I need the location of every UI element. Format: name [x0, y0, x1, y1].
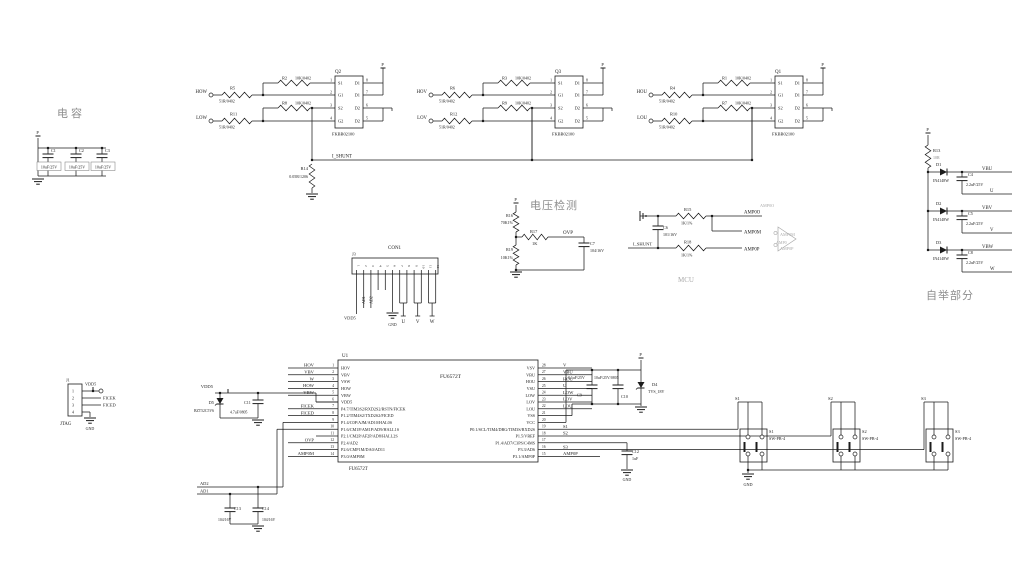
pin-name: P2.4/AD2 — [341, 440, 358, 445]
switch-contact — [760, 452, 764, 456]
switch-contact — [853, 452, 857, 456]
tvs-diode[interactable] — [636, 382, 645, 390]
net-label: OVP — [305, 438, 315, 443]
pin-number: 10 — [422, 265, 426, 269]
resistor[interactable] — [662, 118, 692, 124]
pin-number: 5 — [806, 116, 808, 120]
net-label: LOV — [417, 116, 427, 121]
diode-part: BZT52C5V6 — [194, 409, 214, 413]
pin-name: P2.6/CMP1M/DA0/AD11 — [341, 447, 385, 452]
pin-number: 4 — [770, 116, 772, 120]
cap-ref: C12 — [632, 449, 639, 454]
net-label: VBW — [982, 245, 994, 250]
net-label: S1 — [563, 424, 569, 429]
pin-number: 2 — [550, 90, 552, 94]
phase-label: U — [401, 320, 405, 325]
res-value: 1K/1% — [681, 221, 693, 226]
net-label: I_SHUNT — [633, 242, 652, 247]
pin-name: S2 — [778, 106, 783, 111]
port-pin[interactable] — [649, 119, 653, 123]
ad-filter: AD2AD1C13104/16VC14104/16V — [197, 481, 283, 531]
component-part: SW-PB-4 — [769, 436, 786, 441]
diode-ref: D1 — [936, 162, 941, 167]
vdd5-reg: VDD5D5BZT52C5V6C114.7uF/0805 — [194, 384, 338, 425]
phase-label: W — [990, 267, 995, 272]
pin-number: 14 — [330, 452, 334, 456]
pin-name: G2 — [778, 119, 783, 124]
pin-number: 24 — [542, 391, 546, 395]
pin-number: 3 — [332, 377, 334, 381]
res-ref: R9 — [502, 101, 508, 106]
res-value: 51R/0402 — [439, 99, 455, 104]
res-ref: R11 — [230, 112, 237, 117]
schematic-canvas: PC110uF/25VC210uF/25VC310uF/25VHOWR551R/… — [0, 0, 1034, 580]
cap-value: 10uF/25V — [95, 164, 111, 169]
port-pin[interactable] — [429, 119, 433, 123]
schematic-sheet: PC110uF/25VC210uF/25VC310uF/25VHOWR551R/… — [0, 0, 1034, 580]
pin-name: VBW — [341, 393, 351, 398]
port-pin[interactable] — [429, 93, 433, 97]
capacitor[interactable] — [957, 216, 968, 220]
pin-name: G2 — [558, 119, 563, 124]
pin-name: D1 — [575, 81, 580, 86]
ghost-label: AMP0M — [780, 232, 795, 237]
pin-number: 8 — [407, 265, 411, 267]
diode-part: IN4148W — [933, 178, 949, 183]
gnd-symbol — [252, 526, 264, 531]
pin-number: 11 — [429, 265, 433, 269]
power-net-label: P — [821, 62, 824, 67]
capacitor-bank: PC110uF/25VC210uF/25VC310uF/25V — [32, 130, 115, 184]
pin-number: 25 — [542, 384, 546, 388]
cap-ref: C5 — [968, 211, 973, 216]
cap-value: 2.2uF/25V — [966, 221, 983, 226]
pin-name: D1 — [355, 93, 360, 98]
res-value: 10K/0402 — [735, 76, 751, 81]
pin-number: 1 — [72, 389, 74, 394]
pin-name: P1.4/AD7/C3PS/C4MS — [495, 440, 535, 445]
component-ref: Q3 — [555, 70, 562, 75]
gnd-symbol — [510, 272, 522, 277]
switch-contact — [760, 435, 764, 439]
pin-number: 11 — [331, 431, 335, 435]
cap-value: 0.1uF/25V — [568, 376, 585, 380]
power-net-label: P — [381, 62, 384, 67]
cap-value: 10uF/25V — [41, 164, 57, 169]
resistor[interactable] — [718, 105, 750, 111]
pin-number: 3 — [371, 265, 375, 267]
cap-ref: C8 — [968, 250, 973, 255]
gnd-symbol — [306, 194, 318, 199]
phase-label: V — [990, 228, 994, 233]
power-flag-p: P — [601, 62, 606, 68]
cap-ref: C9 — [577, 393, 582, 398]
component-part: FKBB02100 — [332, 132, 355, 137]
resistor[interactable] — [309, 164, 315, 188]
resistor[interactable] — [498, 105, 530, 111]
component-ref: S1 — [769, 429, 774, 434]
resistor[interactable] — [522, 234, 548, 240]
net-label: S2 — [828, 396, 834, 401]
pin-number: 5 — [586, 116, 588, 120]
cap-value: 104/16V — [262, 518, 276, 522]
resistor[interactable] — [222, 92, 252, 98]
vcc-decoupling: P0.1uF/25VC910uF/25V/0805C10D4TVS_18VC12… — [566, 352, 665, 482]
switches: S1S1SW-PB-4S2S2SW-PB-4S3S3SW-PB-4GND — [735, 396, 972, 487]
res-ref: R17 — [530, 229, 538, 234]
res-ref: R7 — [722, 101, 728, 106]
res-ref: R4 — [670, 86, 676, 91]
jtag: J11234VDD5FICEKFICEDGNDJTAG — [60, 378, 117, 432]
component-part: FU6572T — [440, 374, 462, 380]
component-part: SW-PB-4 — [955, 436, 972, 441]
res-value: 51R/0402 — [659, 125, 675, 130]
net-label: VBV — [982, 206, 993, 211]
pin-name: VBV — [341, 372, 350, 377]
section-title-voltage-detect: 电压检测 — [530, 197, 578, 213]
pin-number: 7 — [586, 90, 588, 94]
resistor[interactable] — [442, 92, 472, 98]
pin-number: 7 — [400, 265, 404, 267]
pin-number: 2 — [330, 90, 332, 94]
cap-ref: C14 — [262, 506, 270, 511]
switch-contact — [853, 435, 857, 439]
component-part: SW-PB-4 — [862, 436, 879, 441]
port-pin[interactable] — [209, 119, 213, 123]
cap-value: 4.7uF/0805 — [230, 411, 248, 415]
res-value: 10K/0402 — [515, 101, 531, 106]
res-ref: R5 — [230, 86, 236, 91]
net-label: S3 — [921, 396, 927, 401]
gnd-label: GND — [743, 482, 752, 487]
phase-label: U — [990, 189, 994, 194]
resistor[interactable] — [278, 80, 310, 86]
pin-name: G1 — [338, 93, 343, 98]
res-ref: R1 — [722, 76, 727, 81]
pin-name: P1.6/CM1P/AM1P/AD9/HALL1S — [341, 427, 400, 432]
switch-contact — [839, 452, 843, 456]
capacitor[interactable] — [253, 400, 264, 404]
diode[interactable] — [940, 208, 947, 215]
pin-number: 2 — [72, 396, 74, 401]
power-net-label: P — [36, 130, 39, 135]
mcu-fu6572t: U1FU6572TFU6572T1HOVHOV28VSVV2VBVVBV27VB… — [277, 354, 924, 494]
pin-name: VDD5 — [341, 400, 352, 405]
net-label: LOU — [637, 116, 647, 121]
pin-name: VSV — [527, 366, 535, 371]
component-part: FKBB02100 — [772, 132, 795, 137]
pin-name: LOU — [526, 406, 535, 411]
net-label: FICED — [301, 410, 315, 415]
res-value: 51R/0402 — [219, 125, 235, 130]
pin-number: 4 — [330, 116, 332, 120]
cap-ref: C7 — [590, 241, 595, 246]
net-label: VBU — [982, 167, 993, 172]
pin-name: D2 — [355, 119, 360, 124]
capacitor[interactable] — [71, 154, 82, 158]
phase-label: V — [416, 320, 420, 325]
zener-d5[interactable] — [215, 398, 224, 406]
diode[interactable] — [940, 247, 947, 254]
net-label: V — [563, 363, 567, 368]
switch-contact — [839, 435, 843, 439]
pin-name: P3.0/AMP0M — [341, 454, 365, 459]
power-net-label: P — [926, 127, 929, 132]
pin-name: P1.2/TIM4S2/TXD2S2/FICED — [341, 413, 393, 418]
net-label: VBW — [303, 390, 314, 395]
cap-ref: C1 — [51, 148, 56, 153]
capacitor[interactable] — [43, 154, 54, 158]
power-net-label: P — [639, 352, 642, 357]
res-ref: R18 — [684, 240, 692, 245]
pin-number: 13 — [330, 445, 334, 449]
pin-number: 27 — [542, 370, 546, 374]
capacitor[interactable] — [613, 385, 624, 389]
ghost-label: AMP0 — [776, 240, 787, 245]
res-value: 10K1% — [501, 255, 514, 260]
connector-ref: J3 — [352, 252, 356, 257]
driver-block-q3: HOVR651R/0402R310K/0402LOVR1251R/0402R91… — [417, 62, 612, 160]
jtag-body[interactable] — [68, 384, 82, 416]
pin-name: LOV — [526, 400, 535, 405]
pin-number: 7 — [366, 90, 368, 94]
capacitor[interactable] — [957, 177, 968, 181]
power-flag-p: P — [821, 62, 826, 68]
pin-number: 1 — [770, 78, 772, 82]
capacitor[interactable] — [579, 243, 590, 247]
res-value: 51R/0402 — [659, 99, 675, 104]
capacitor[interactable] — [622, 451, 633, 455]
res-value: 10K/0402 — [515, 76, 531, 81]
power-flag-p: P — [381, 62, 386, 68]
switch-contact — [946, 435, 950, 439]
pin-name: VBU — [526, 372, 535, 377]
resistor[interactable] — [442, 118, 472, 124]
component-part: FU6572T — [349, 467, 368, 472]
port-pin[interactable] — [209, 93, 213, 97]
pin-number: 3 — [770, 103, 772, 107]
pin-name: G1 — [778, 93, 783, 98]
pin-number: 5 — [332, 391, 334, 395]
pin-name: D1 — [795, 81, 800, 86]
res-ref: R14 — [301, 166, 309, 171]
resistor[interactable] — [662, 92, 692, 98]
pin-name: P3.1/AMP0P — [513, 454, 536, 459]
con1-header: CON1J3123456789101112VDD5AD1AD2GNDUVW — [344, 246, 440, 327]
pin-name: HOU — [526, 379, 535, 384]
res-value: 70K1% — [501, 220, 514, 225]
cap-ref: C11 — [244, 400, 251, 405]
resistor[interactable] — [718, 80, 750, 86]
pin-number: 4 — [378, 265, 382, 267]
resistor[interactable] — [513, 245, 519, 265]
pin-number: 12 — [330, 438, 334, 442]
port-pin[interactable] — [649, 93, 653, 97]
component-ref: Q1 — [775, 70, 782, 75]
pin-number: 6 — [393, 265, 397, 267]
diode-ref: D4 — [652, 382, 658, 387]
pin-name: P2.1/CM2P/AF2P/AD8/HALL2S — [341, 434, 398, 439]
switch-contact — [932, 435, 936, 439]
pin-number: 6 — [586, 103, 588, 107]
power-flag-p: P — [36, 130, 41, 136]
res-ref: R13 — [933, 148, 941, 153]
ghost-label: AMP0P — [780, 246, 794, 251]
net-label: HOU — [637, 90, 648, 95]
section-title-capacitors: 电容 — [57, 105, 85, 121]
power-flag-p: P — [926, 127, 931, 133]
res-ref: R16 — [506, 213, 513, 218]
pin-number: 1 — [332, 363, 334, 367]
sense-amp: C6101/16VR151K/1%AMP0OAMP0MI_SHUNTR181K/… — [628, 203, 796, 258]
section-title-bootstrap: 自举部分 — [926, 287, 974, 303]
gnd-symbol — [387, 313, 399, 318]
pin-name: VSS — [527, 413, 535, 418]
cap-value: 104/16V — [590, 248, 604, 253]
pin-name: D1 — [355, 81, 360, 86]
pin-name: VSW — [341, 379, 350, 384]
net-label: VDD5 — [201, 384, 214, 389]
cap-value: 10uF/25V/0805 — [594, 376, 619, 380]
pin-number: 19 — [542, 425, 546, 429]
net-label: LOW — [196, 116, 207, 121]
pin-name: S2 — [338, 106, 343, 111]
net-label: VDD5 — [85, 382, 96, 387]
pin-name: D1 — [795, 93, 800, 98]
pin-name: HOW — [341, 386, 351, 391]
pin-name: D2 — [795, 119, 800, 124]
res-ref: R15 — [684, 207, 692, 212]
pin-name: S1 — [338, 81, 343, 86]
switch-contact — [946, 452, 950, 456]
pin-name: P4.7/TIM3S2/RXD2S2/RSTN/FICEK — [341, 406, 406, 411]
phase-label: W — [430, 320, 435, 325]
pin-number: 6 — [806, 103, 808, 107]
component-part: FKBB02100 — [552, 132, 575, 137]
pin-number: 18 — [542, 431, 546, 435]
connector-title: CON1 — [388, 246, 402, 251]
switch-contact — [746, 452, 750, 456]
cap-value: 2.2uF/25V — [966, 182, 983, 187]
diode[interactable] — [940, 169, 947, 176]
ghost-pin — [774, 231, 777, 234]
cap-ref: C4 — [968, 172, 974, 177]
pin-number: 22 — [542, 404, 546, 408]
pin-number: 21 — [542, 411, 546, 415]
res-value: 10R — [933, 155, 940, 160]
net-label: AD2 — [368, 296, 373, 304]
resistor[interactable] — [676, 213, 706, 219]
pin-number: 3 — [550, 103, 552, 107]
pin-name: P1.5/VREF — [516, 434, 536, 439]
pin-number: 20 — [542, 418, 546, 422]
cap-ref: C2 — [79, 148, 84, 153]
pin-name: VCC — [526, 420, 535, 425]
resistor[interactable] — [925, 145, 931, 168]
diode-ref: D3 — [936, 240, 942, 245]
power-flag-p: P — [639, 352, 644, 358]
cap-ref: C3 — [105, 148, 110, 153]
res-ref: R2 — [282, 76, 287, 81]
net-label: W — [310, 376, 315, 381]
gnd-label: GND — [623, 477, 632, 482]
cap-value: 10uF/25V — [69, 164, 85, 169]
pin-number: 16 — [542, 445, 546, 449]
res-ref: R19 — [506, 247, 513, 252]
pin-number: 8 — [806, 78, 808, 82]
cap-ref: C10 — [621, 394, 628, 399]
pin-name: S1 — [778, 81, 783, 86]
pin-name: G2 — [338, 119, 343, 124]
res-ref: R3 — [502, 76, 508, 81]
pin-number: 23 — [542, 397, 546, 401]
pin-number: 7 — [806, 90, 808, 94]
net-label: HOW — [196, 90, 208, 95]
net-label: FICED — [103, 403, 116, 408]
pin-number: 12 — [436, 265, 440, 269]
net-label: FICEK — [103, 396, 117, 401]
pin-name: P3.3/AD6 — [518, 447, 535, 452]
resistor[interactable] — [513, 212, 519, 232]
net-label: AMP0M — [298, 451, 314, 456]
pin-number: 9 — [332, 418, 334, 422]
component-ref: S2 — [862, 429, 867, 434]
capacitor[interactable] — [957, 255, 968, 259]
pin-number: 10 — [330, 425, 334, 429]
pin-name: HOV — [341, 366, 350, 371]
resistor[interactable] — [278, 105, 310, 111]
pin-number: 2 — [364, 265, 368, 267]
pin-number: 17 — [542, 438, 546, 442]
pin-number: 4 — [550, 116, 552, 120]
pin-number: 28 — [542, 363, 546, 367]
component-ref: Q2 — [335, 70, 342, 75]
pin-number: 6 — [332, 397, 334, 401]
net-label: LOV — [563, 397, 573, 402]
ghost-label: AMP0O — [760, 203, 774, 208]
junction-dot — [657, 247, 659, 249]
power-flag-p: P — [514, 197, 519, 203]
pin-number: 4 — [72, 410, 74, 415]
res-value: 1K — [532, 241, 538, 246]
resistor[interactable] — [498, 80, 530, 86]
diode-part: IN4148W — [933, 217, 949, 222]
pin-name: P0.1/SCL/TIM4/DBG/TIM3S/RXD2S — [470, 427, 536, 432]
gnd-symbol — [621, 470, 633, 475]
net-label: S3 — [563, 444, 569, 449]
net-label: VDD5 — [344, 316, 357, 321]
gnd-symbol — [635, 407, 647, 412]
resistor[interactable] — [222, 118, 252, 124]
net-label: FICEK — [301, 404, 315, 409]
cap-value: 2.2uF/25V — [966, 260, 983, 265]
net-label: LOW — [563, 390, 574, 395]
capacitor[interactable] — [97, 154, 108, 158]
pin-name: P1.4/C0P/AJM/AD10/HAL0S — [341, 420, 393, 425]
port-pin[interactable] — [99, 389, 103, 393]
power-net-label: P — [601, 62, 604, 67]
component-ref: U1 — [342, 354, 349, 359]
ghost-label-mcu: MCU — [678, 276, 694, 284]
net-label: AMP0P — [563, 451, 578, 456]
connector-ref: J1 — [66, 378, 70, 383]
component-ref: S3 — [955, 429, 960, 434]
pin-name: D1 — [575, 93, 580, 98]
capacitor[interactable] — [653, 226, 664, 230]
net-label: HOW — [303, 383, 315, 388]
pin-number: 8 — [586, 78, 588, 82]
resistor[interactable] — [676, 245, 706, 251]
